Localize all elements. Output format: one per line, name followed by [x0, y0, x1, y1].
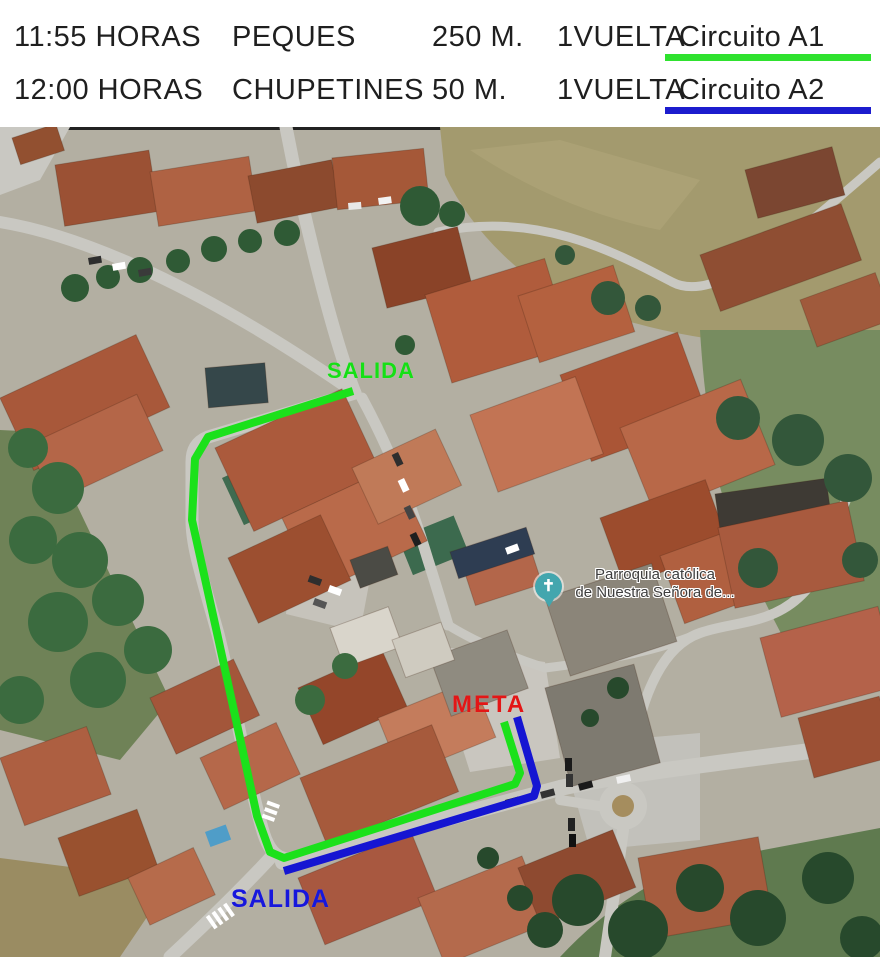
car	[566, 774, 573, 787]
tree	[8, 428, 48, 468]
tree	[591, 281, 625, 315]
tree	[400, 186, 440, 226]
schedule-row-chupetines: 12:00 HORAS CHUPETINES 50 M. 1VUELTA Cir…	[0, 74, 880, 107]
building-roof	[150, 156, 257, 226]
race-time: 11:55 HORAS	[14, 21, 232, 54]
tree	[70, 652, 126, 708]
tree	[61, 274, 89, 302]
tree	[166, 249, 190, 273]
race-distance: 250 M.	[432, 21, 557, 54]
tree	[124, 626, 172, 674]
car	[348, 202, 362, 210]
race-category: CHUPETINES	[232, 74, 432, 107]
tree	[581, 709, 599, 727]
satellite-map: SALIDA META SALIDA ✝ Parroquia católica …	[0, 127, 880, 957]
church-poi-marker-tail	[544, 599, 554, 607]
tree	[607, 677, 629, 699]
tree	[439, 201, 465, 227]
tree	[477, 847, 499, 869]
tree	[28, 592, 88, 652]
church-cross-icon: ✝	[542, 579, 555, 595]
roundabout	[599, 782, 647, 830]
tree	[52, 532, 108, 588]
tree	[676, 864, 724, 912]
tree	[635, 295, 661, 321]
satellite-map-art	[0, 127, 880, 957]
tree	[555, 245, 575, 265]
car	[565, 758, 572, 771]
circuit-name: Circuito A2	[679, 74, 880, 107]
building-roof	[55, 150, 159, 226]
finish-label: META	[452, 691, 526, 719]
tree	[274, 220, 300, 246]
church-poi-label: Parroquia católica de Nuestra Señora de.…	[565, 566, 745, 602]
tree	[32, 462, 84, 514]
tree	[552, 874, 604, 926]
race-laps: 1VUELTA	[557, 74, 679, 107]
car	[88, 256, 102, 265]
race-category: PEQUES	[232, 21, 432, 54]
tree	[238, 229, 262, 253]
road	[0, 222, 355, 393]
car	[112, 262, 126, 271]
race-laps: 1VUELTA	[557, 21, 679, 54]
start-label-circuit-a1: SALIDA	[327, 358, 415, 384]
tree	[527, 912, 563, 948]
tree	[824, 454, 872, 502]
circuit-name: Circuito A1	[679, 21, 880, 54]
tree	[201, 236, 227, 262]
tree	[9, 516, 57, 564]
tree	[295, 685, 325, 715]
tree	[92, 574, 144, 626]
race-distance: 50 M.	[432, 74, 557, 107]
schedule-row-peques: 11:55 HORAS PEQUES 250 M. 1VUELTA Circui…	[0, 21, 880, 54]
tree	[802, 852, 854, 904]
building-roof	[248, 160, 341, 223]
tree	[507, 885, 533, 911]
tree	[395, 335, 415, 355]
tree	[716, 396, 760, 440]
circuit-a1-underline	[665, 54, 871, 61]
tree	[730, 890, 786, 946]
car	[569, 834, 576, 847]
church-poi-marker: ✝	[535, 573, 562, 600]
schedule-header: 11:55 HORAS PEQUES 250 M. 1VUELTA Circui…	[0, 0, 880, 127]
pool	[205, 824, 231, 847]
building-roof	[205, 363, 268, 408]
start-label-circuit-a2: SALIDA	[231, 885, 330, 914]
tree	[332, 653, 358, 679]
road	[560, 800, 599, 806]
tree	[842, 542, 878, 578]
tree	[772, 414, 824, 466]
church-poi-label-line2: de Nuestra Señora de...	[565, 584, 745, 602]
race-circuit-poster: 11:55 HORAS PEQUES 250 M. 1VUELTA Circui…	[0, 0, 880, 957]
circuit-name-text: Circuito A1	[679, 21, 825, 53]
church-poi-label-line1: Parroquia católica	[565, 566, 745, 584]
race-time: 12:00 HORAS	[14, 74, 232, 107]
circuit-a2-underline	[665, 107, 871, 114]
car	[568, 818, 575, 831]
circuit-name-text: Circuito A2	[679, 74, 825, 106]
